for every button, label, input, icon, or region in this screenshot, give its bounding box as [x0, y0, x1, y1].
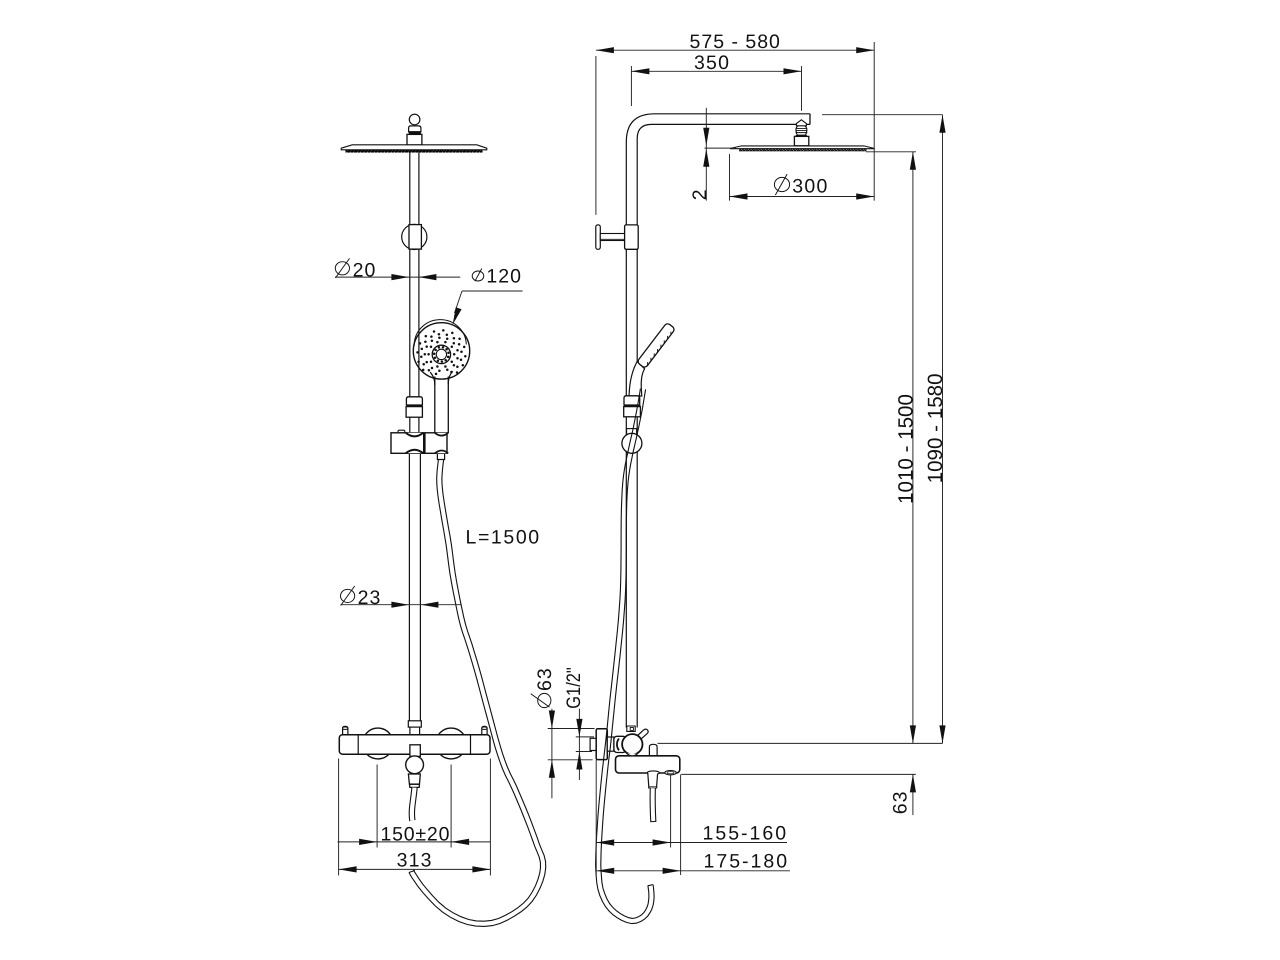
- svg-text:L=1500: L=1500: [466, 527, 541, 549]
- svg-text:300: 300: [792, 175, 828, 197]
- svg-text:63: 63: [534, 667, 556, 691]
- svg-text:23: 23: [358, 587, 382, 609]
- svg-text:1010 - 1500: 1010 - 1500: [895, 394, 918, 504]
- svg-text:20: 20: [353, 260, 377, 282]
- svg-text:63: 63: [890, 791, 912, 815]
- svg-text:350: 350: [694, 52, 730, 74]
- svg-text:575 - 580: 575 - 580: [690, 31, 781, 53]
- svg-text:155-160: 155-160: [703, 823, 789, 845]
- svg-text:175-180: 175-180: [704, 850, 790, 872]
- svg-text:313: 313: [397, 849, 433, 871]
- svg-text:G1/2": G1/2": [563, 667, 585, 709]
- svg-text:150±20: 150±20: [381, 823, 451, 845]
- svg-text:1090 - 1580: 1090 - 1580: [924, 373, 947, 483]
- svg-text:120: 120: [486, 265, 522, 287]
- svg-text:2: 2: [689, 189, 711, 200]
